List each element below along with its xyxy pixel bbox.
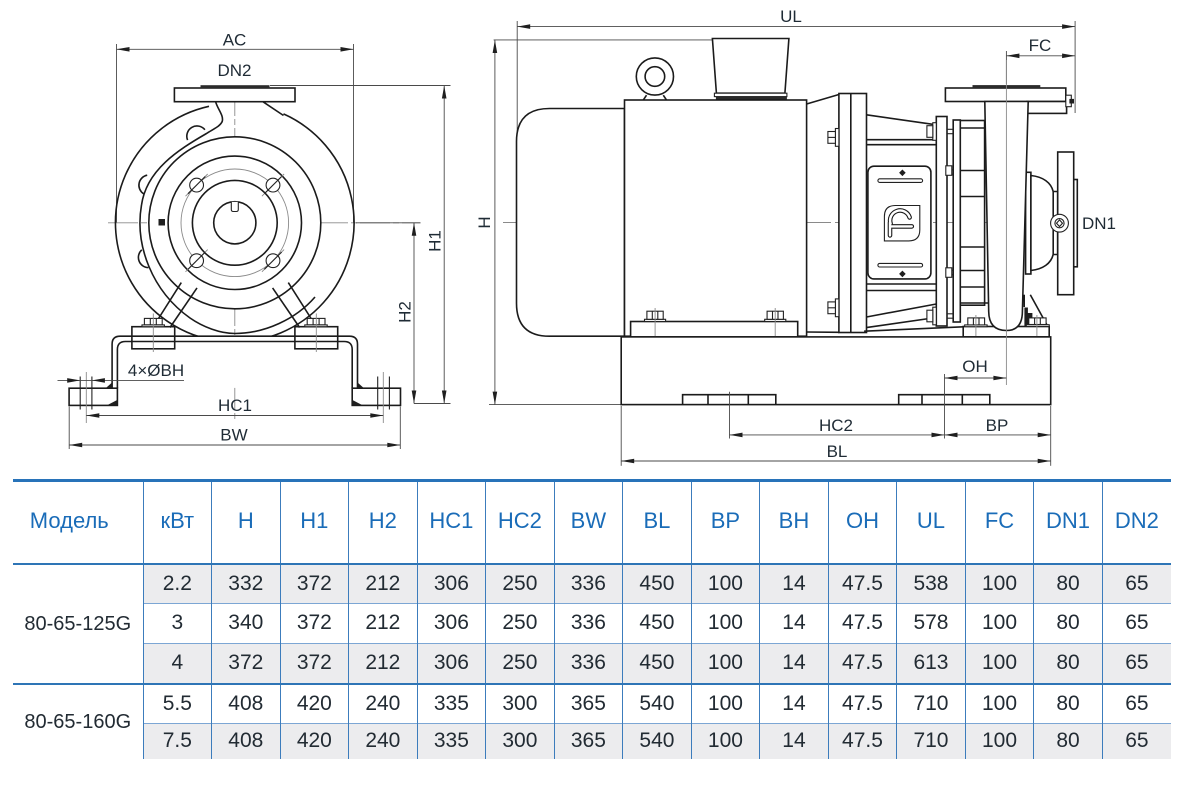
svg-text:HC1: HC1 [218,396,252,415]
svg-text:DN1: DN1 [1082,214,1116,233]
svg-text:HC2: HC2 [819,416,853,435]
svg-text:H2: H2 [395,301,414,323]
svg-text:DN2: DN2 [217,61,251,80]
svg-text:4×ØBH: 4×ØBH [128,361,184,380]
svg-text:BP: BP [986,416,1009,435]
svg-text:UL: UL [780,7,802,26]
svg-text:OH: OH [962,357,988,376]
svg-text:FC: FC [1029,36,1052,55]
svg-text:BL: BL [827,442,848,461]
svg-text:BW: BW [220,426,247,445]
svg-text:H: H [475,216,494,228]
svg-text:H1: H1 [426,230,445,252]
svg-text:AC: AC [223,31,247,50]
